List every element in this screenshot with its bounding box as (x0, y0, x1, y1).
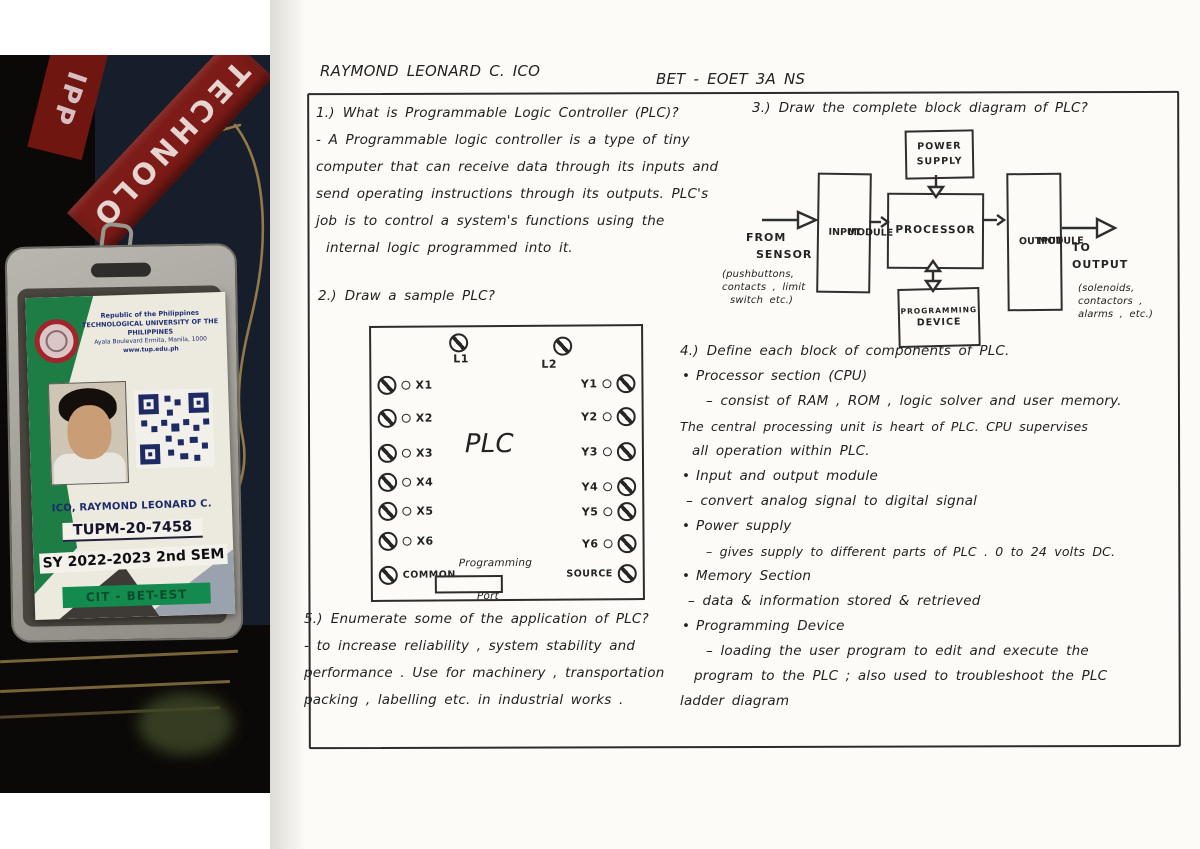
terminal-label: X5 (416, 505, 433, 518)
indicator-dot-icon (402, 478, 411, 487)
plc-output-terminal-row: Y6 (582, 534, 637, 553)
book-spine-line (0, 650, 238, 663)
programming-port-label-bottom: Port (477, 590, 499, 602)
indicator-dot-icon (402, 507, 411, 516)
plc-output-terminal-row: Y3 (581, 442, 636, 461)
q4-item-line: ladder diagram (680, 689, 1195, 714)
background-object (138, 693, 233, 755)
question-1-block: 1.) What is Programmable Logic Controlle… (316, 100, 726, 262)
plc-input-terminal-row: X6 (378, 532, 433, 551)
plc-l1-label: L1 (453, 352, 469, 365)
to-note-line: contactors , (1078, 295, 1153, 308)
terminal-label: Y4 (581, 480, 598, 493)
q4-item-line: – consist of RAM , ROM , logic solver an… (680, 389, 1195, 414)
notebook-page: RAYMOND LEONARD C. ICO BET - EOET 3A NS … (270, 0, 1200, 849)
screw-terminal-icon (618, 534, 637, 553)
plc-output-terminal-row: Y4 (581, 477, 636, 496)
plc-input-terminal-row: X4 (378, 473, 433, 492)
indicator-dot-icon (602, 379, 611, 388)
q4-item-title: Processor section (CPU) (680, 364, 1195, 389)
screw-terminal-icon (378, 502, 397, 521)
plc-l2-label: L2 (541, 358, 557, 371)
terminal-label: Y3 (581, 445, 598, 458)
screw-terminal-icon (616, 374, 635, 393)
q2-question: Draw a sample PLC? (345, 288, 495, 304)
terminal-label: X2 (416, 412, 433, 425)
terminal-label: X6 (416, 535, 433, 548)
q5-answer-line: - to increase reliability , system stabi… (304, 633, 724, 660)
q1-answer-line: - A Programmable logic controller is a t… (316, 127, 726, 154)
screw-terminal-icon (377, 376, 396, 395)
q1-answer-line: send operating instructions through its … (316, 181, 726, 208)
terminal-label: SOURCE (566, 568, 612, 579)
indicator-dot-icon (403, 537, 412, 546)
from-label-1: FROM (746, 230, 812, 247)
student-name-header: RAYMOND LEONARD C. ICO (320, 62, 540, 80)
q5-question: Enumerate some of the application of PLC… (331, 606, 649, 633)
screw-terminal-icon (379, 566, 398, 585)
screw-terminal-icon (617, 407, 636, 426)
student-id-card: Republic of the Philippines TECHNOLOGICA… (25, 292, 235, 620)
q4-item-line: – convert analog signal to digital signa… (680, 489, 1195, 514)
terminal-label: X1 (415, 379, 432, 392)
desk-photo-area: IPP TECHNOLO Republic of the Philippines (0, 55, 270, 793)
from-sensor-note: (pushbuttons, contacts , limit switch et… (722, 268, 805, 307)
qr-code (134, 388, 214, 468)
book-spine-line (0, 680, 230, 693)
plc-source-terminal-row: SOURCE (566, 564, 637, 583)
course-section-header: BET - EOET 3A NS (656, 70, 805, 88)
to-note-line: (solenoids, (1078, 282, 1153, 295)
indicator-dot-icon (401, 381, 410, 390)
q4-item-line: – loading the user program to edit and e… (680, 639, 1195, 664)
indicator-dot-icon (402, 414, 411, 423)
indicator-dot-icon (603, 412, 612, 421)
screw-terminal-icon (553, 337, 572, 356)
from-note-line: switch etc.) (722, 294, 805, 307)
q4-question: Define each block of components of PLC. (707, 338, 1010, 364)
to-label-1: TO (1072, 240, 1128, 257)
to-output-note: (solenoids, contactors , alarms , etc.) (1078, 282, 1153, 321)
photo-face (67, 404, 113, 459)
terminal-label: X4 (416, 476, 433, 489)
from-note-line: (pushbuttons, (722, 268, 805, 281)
screw-terminal-icon (378, 532, 397, 551)
terminal-label: Y5 (582, 505, 599, 518)
to-note-line: alarms , etc.) (1078, 308, 1153, 321)
question-4-block: 4.) Define each block of components of P… (680, 338, 1195, 714)
q2-label: 2.) (318, 288, 337, 304)
plc-output-terminal-row: Y2 (581, 407, 636, 426)
q4-label: 4.) (680, 338, 699, 364)
q4-item-line: all operation within PLC. (680, 439, 1195, 464)
screw-terminal-icon (618, 564, 637, 583)
screw-terminal-icon (449, 333, 468, 352)
q1-label: 1.) (316, 100, 335, 127)
q4-item-title: Programming Device (680, 614, 1195, 639)
q1-answer-line: job is to control a system's functions u… (316, 208, 726, 235)
q1-answer-line: computer that can receive data through i… (316, 154, 726, 181)
terminal-label: Y6 (582, 537, 599, 550)
screw-terminal-icon (378, 409, 397, 428)
q5-label: 5.) (304, 606, 323, 633)
terminal-label: Y2 (581, 410, 598, 423)
holder-slot (91, 263, 151, 278)
q5-answer-line: performance . Use for machinery , transp… (304, 660, 724, 687)
plc-input-terminal-row: X1 (377, 376, 432, 395)
plc-input-terminal-row: X2 (378, 409, 433, 428)
from-sensor-label: FROM SENSOR (746, 230, 812, 263)
university-logo-inner (45, 330, 68, 353)
indicator-dot-icon (603, 447, 612, 456)
terminal-label: Y1 (581, 377, 598, 390)
indicator-dot-icon (402, 449, 411, 458)
q4-item-title: Input and output module (680, 464, 1195, 489)
plc-output-terminal-row: Y1 (581, 374, 636, 393)
q4-item-line: The central processing unit is heart of … (680, 414, 1195, 439)
student-number: TUPM-20-7458 (62, 519, 203, 542)
plc-input-terminal-row: X3 (378, 444, 433, 463)
from-label-2: SENSOR (746, 247, 812, 264)
programming-port-label-top: Programming (459, 557, 532, 570)
screw-terminal-icon (378, 473, 397, 492)
plc-input-terminal-row: X5 (378, 502, 433, 521)
plc-output-terminal-row: Y5 (582, 502, 637, 521)
terminal-label: X3 (416, 447, 433, 460)
q4-item-line: – data & information stored & retrieved (680, 589, 1195, 614)
screenshot-root: RAYMOND LEONARD C. ICO BET - EOET 3A NS … (0, 0, 1200, 849)
screw-terminal-icon (617, 502, 636, 521)
indicator-dot-icon (603, 482, 612, 491)
sample-plc-drawing: L1 L2 X1 X2 X3 X4 X5 X6 (369, 324, 645, 602)
q4-item-title: Memory Section (680, 564, 1195, 589)
screw-terminal-icon (378, 444, 397, 463)
q4-item-line: program to the PLC ; also used to troubl… (680, 664, 1195, 689)
q5-answer-line: packing , labelling etc. in industrial w… (304, 687, 724, 714)
id-badge-holder: Republic of the Philippines TECHNOLOGICA… (5, 243, 244, 643)
student-photo (48, 381, 129, 485)
lanyard-text-secondary: IPP (45, 67, 92, 130)
q1-answer-line: internal logic programmed into it. (316, 235, 726, 262)
question-2-block: 2.) Draw a sample PLC? (318, 288, 495, 304)
from-note-line: contacts , limit (722, 281, 805, 294)
screw-terminal-icon (617, 442, 636, 461)
indicator-dot-icon (604, 539, 613, 548)
to-output-label: TO OUTPUT (1072, 240, 1128, 273)
q4-item-title: Power supply (680, 514, 1195, 539)
screw-terminal-icon (617, 477, 636, 496)
card-header: Republic of the Philippines TECHNOLOGICA… (80, 308, 221, 356)
q4-item-line: – gives supply to different parts of PLC… (680, 539, 1195, 564)
paper-shadow (270, 0, 306, 849)
indicator-dot-icon (603, 507, 612, 516)
question-5-block: 5.) Enumerate some of the application of… (304, 606, 724, 714)
plc-title: PLC (465, 429, 514, 459)
q1-question: What is Programmable Logic Controller (P… (343, 100, 679, 127)
to-label-2: OUTPUT (1072, 257, 1128, 274)
